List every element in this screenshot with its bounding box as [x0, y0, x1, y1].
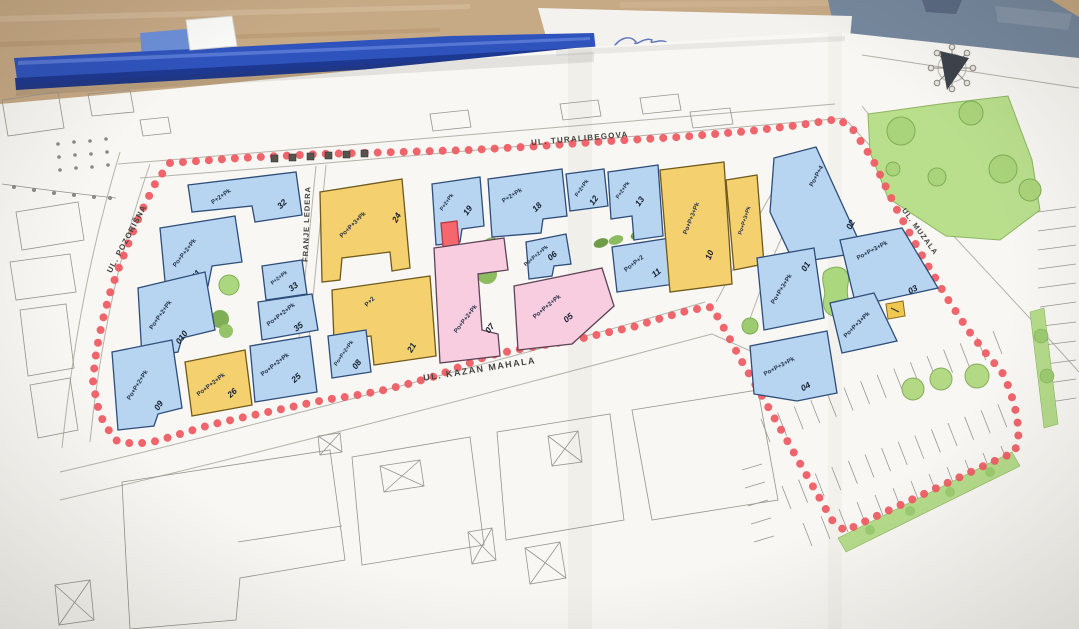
transformer-box: [886, 301, 905, 319]
building-26: Po+P+2+Pk 26: [185, 350, 252, 416]
red-marker: [441, 221, 459, 247]
building-11: Po+P+2 11: [612, 238, 675, 292]
site-plan-photo: P+2+Pk 32 Po+P+2+Pk 011 Po+P+2+Pk 010 Po…: [0, 0, 1079, 629]
building-01: Po+P+3+Pk 01: [757, 248, 824, 330]
building-25: Po+P+2+Pk 25: [250, 336, 317, 402]
north-arrow-icon: [928, 44, 976, 92]
white-tab: [186, 16, 237, 50]
building-12: P+2+Pk 12: [566, 169, 608, 211]
building-08: Po+P+2+Pk 08: [328, 330, 371, 378]
building-33: P+2+Pk 33: [262, 260, 307, 300]
building-10: Po+P+3+Pk 10: [660, 162, 732, 292]
